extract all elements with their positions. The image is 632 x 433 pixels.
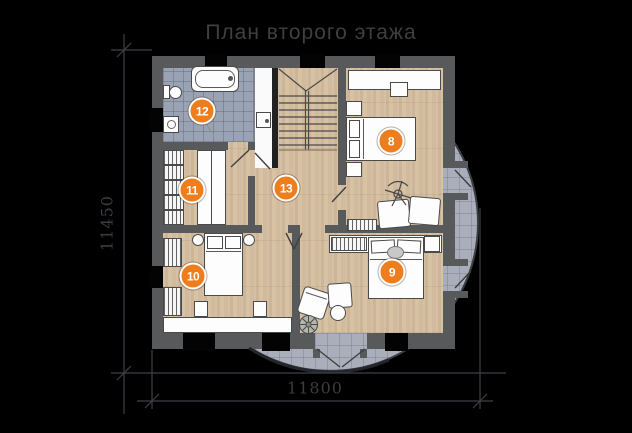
room-marker-11: 11 (179, 177, 206, 204)
plan-linework (0, 0, 632, 433)
room-number: 9 (389, 265, 395, 279)
room-marker-10: 10 (180, 263, 207, 290)
room-number: 8 (388, 134, 394, 148)
stairs (279, 69, 337, 150)
room-number: 10 (187, 269, 199, 283)
room-marker-12: 12 (189, 98, 216, 125)
room-number: 11 (186, 183, 198, 197)
office-chair (385, 181, 411, 206)
room-marker-9: 9 (379, 259, 406, 286)
room-number: 13 (280, 181, 292, 195)
room-marker-13: 13 (273, 175, 300, 202)
room-marker-8: 8 (378, 128, 405, 155)
floor-plan-canvas: План второго этажа (0, 0, 632, 433)
balcony-railing-arc (249, 348, 389, 372)
room-number: 12 (196, 104, 208, 118)
potted-plant (300, 316, 318, 334)
door-leaves (231, 150, 471, 367)
